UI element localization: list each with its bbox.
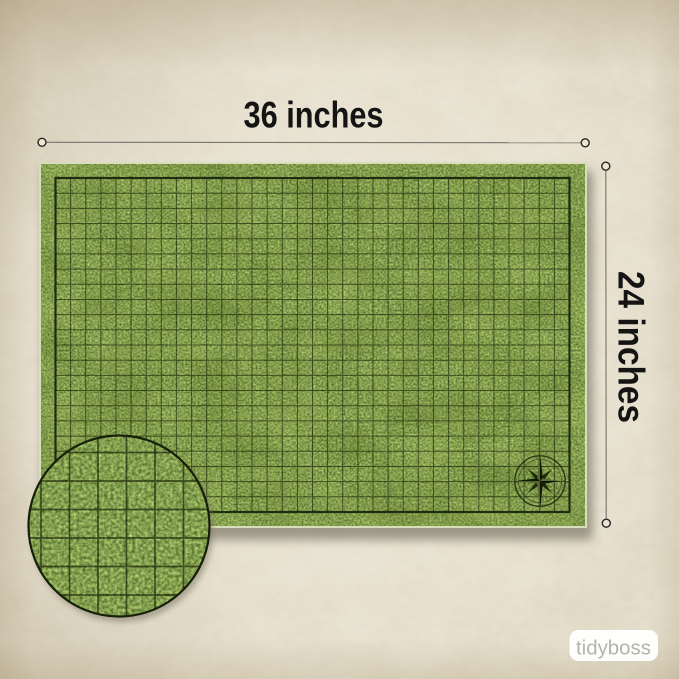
svg-text:24 inches: 24 inches	[611, 271, 652, 423]
svg-text:36 inches: 36 inches	[244, 94, 384, 135]
svg-text:tidyboss: tidyboss	[576, 637, 651, 660]
